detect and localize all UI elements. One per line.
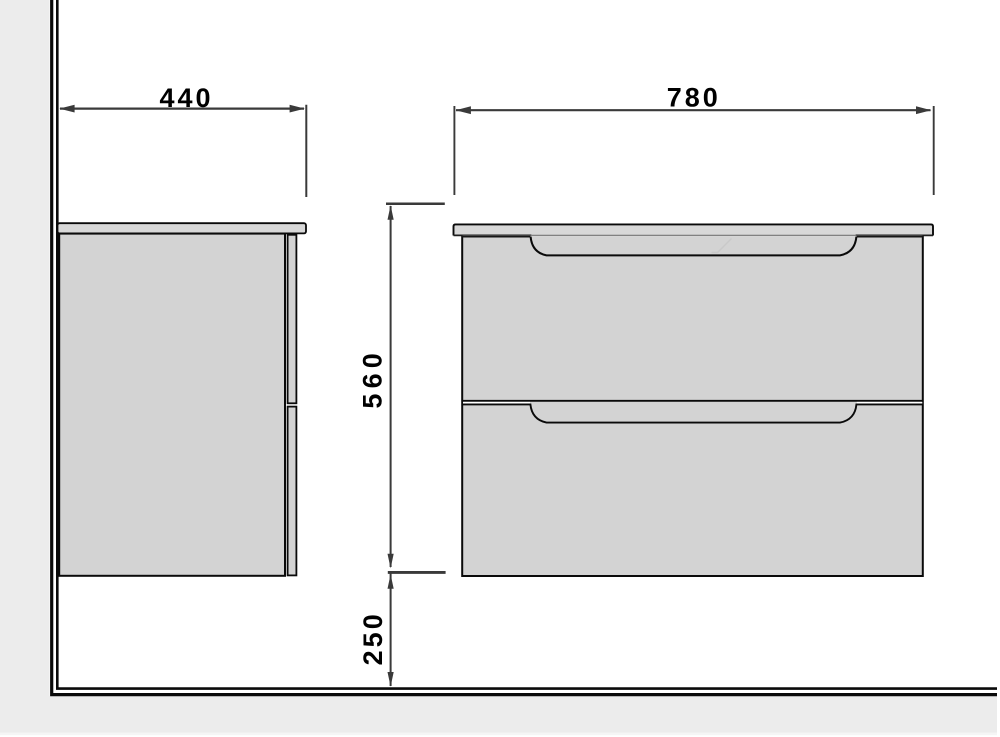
svg-text:780: 780: [667, 83, 721, 113]
svg-text:560: 560: [358, 348, 388, 409]
svg-text:250: 250: [358, 611, 388, 665]
